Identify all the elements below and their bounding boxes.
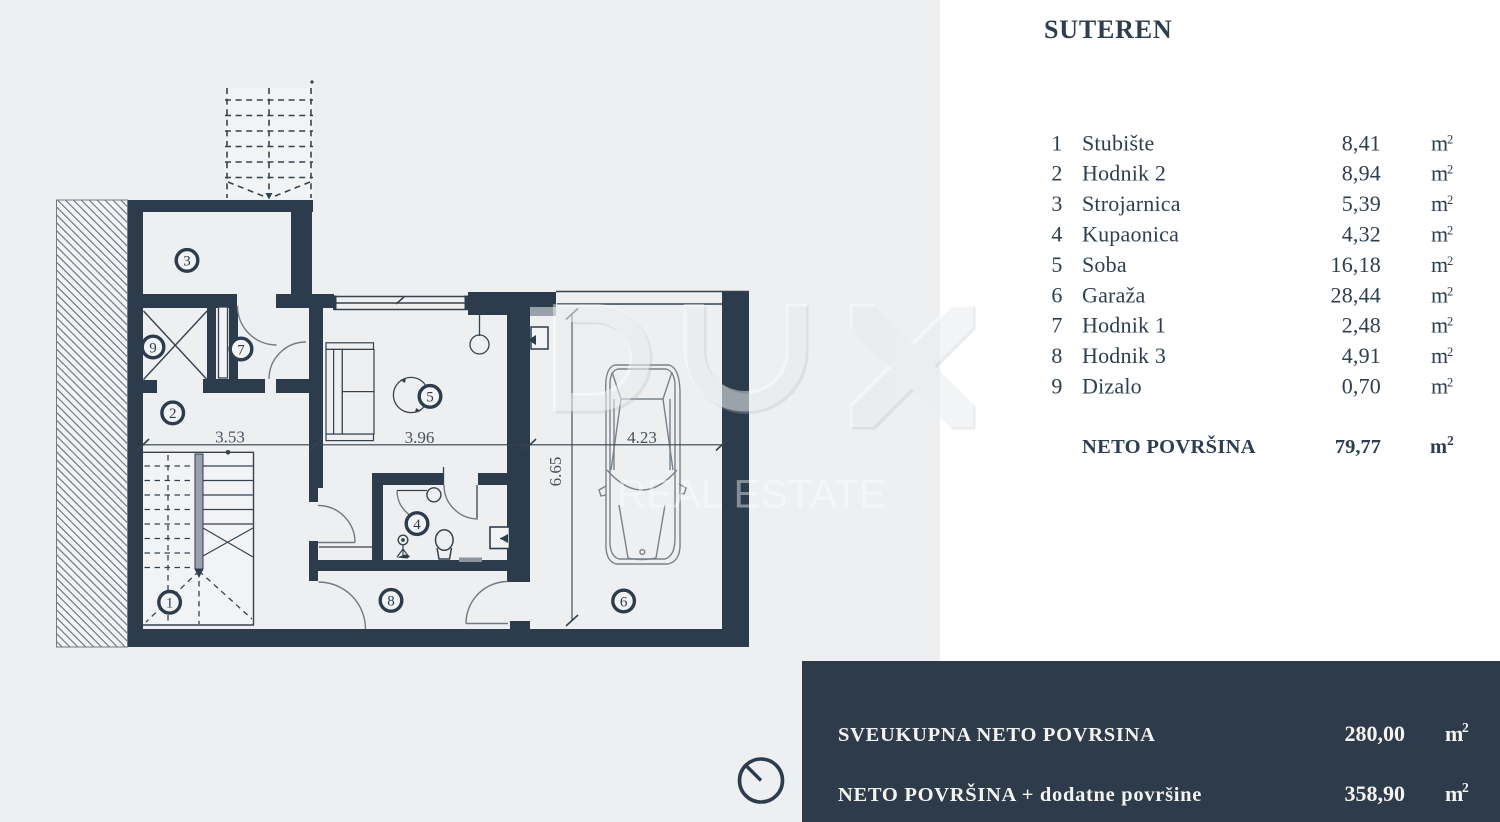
svg-text:2: 2 (1447, 376, 1453, 390)
svg-text:2: 2 (169, 406, 177, 422)
svg-text:2: 2 (1447, 433, 1454, 448)
svg-text:2: 2 (1447, 315, 1453, 329)
svg-text:m: m (1431, 161, 1448, 186)
svg-text:Hodnik 3: Hodnik 3 (1082, 343, 1166, 368)
svg-text:SUTEREN: SUTEREN (1044, 15, 1172, 44)
svg-text:m: m (1431, 222, 1448, 247)
svg-text:m: m (1431, 191, 1448, 216)
svg-text:Garaža: Garaža (1082, 282, 1146, 307)
svg-text:4,32: 4,32 (1342, 222, 1381, 247)
svg-text:6: 6 (620, 594, 628, 610)
svg-text:Kupaonica: Kupaonica (1082, 222, 1179, 247)
svg-text:9: 9 (1051, 374, 1062, 399)
svg-text:2: 2 (1447, 132, 1453, 146)
svg-text:2: 2 (1447, 284, 1453, 298)
svg-text:m: m (1431, 343, 1448, 368)
svg-text:6: 6 (1051, 282, 1062, 307)
svg-text:Soba: Soba (1082, 252, 1127, 277)
svg-text:2: 2 (1447, 224, 1453, 238)
svg-text:4,91: 4,91 (1342, 343, 1381, 368)
svg-text:3: 3 (1051, 191, 1062, 216)
svg-text:m: m (1445, 721, 1463, 746)
svg-text:4: 4 (413, 517, 421, 533)
svg-text:2: 2 (1447, 345, 1453, 359)
svg-text:m: m (1431, 313, 1448, 338)
svg-text:5: 5 (426, 390, 434, 406)
svg-text:1: 1 (1051, 130, 1062, 155)
svg-text:5,39: 5,39 (1342, 191, 1381, 216)
svg-text:SVEUKUPNA NETO POVRSINA: SVEUKUPNA NETO POVRSINA (838, 724, 1156, 746)
svg-text:2,48: 2,48 (1342, 313, 1381, 338)
svg-text:28,44: 28,44 (1331, 282, 1382, 307)
svg-text:m: m (1445, 781, 1463, 806)
svg-text:Dizalo: Dizalo (1082, 374, 1142, 399)
svg-text:3.53: 3.53 (215, 428, 245, 447)
svg-text:79,77: 79,77 (1335, 436, 1381, 458)
svg-text:8: 8 (1051, 343, 1062, 368)
svg-text:5: 5 (1051, 252, 1062, 277)
svg-text:3.96: 3.96 (405, 428, 435, 447)
svg-text:7: 7 (237, 342, 245, 358)
svg-text:m: m (1431, 282, 1448, 307)
svg-text:4.23: 4.23 (627, 428, 657, 447)
svg-text:1: 1 (166, 596, 174, 612)
svg-text:2: 2 (1051, 161, 1062, 186)
svg-text:7: 7 (1051, 313, 1062, 338)
svg-text:280,00: 280,00 (1345, 721, 1406, 746)
svg-text:8,94: 8,94 (1342, 161, 1381, 186)
svg-text:m: m (1431, 252, 1448, 277)
svg-text:Strojarnica: Strojarnica (1082, 191, 1181, 216)
svg-text:4: 4 (1051, 222, 1062, 247)
svg-text:2: 2 (1462, 720, 1469, 735)
svg-text:Hodnik 1: Hodnik 1 (1082, 313, 1166, 338)
svg-text:m: m (1431, 374, 1448, 399)
svg-text:6.65: 6.65 (546, 457, 565, 487)
svg-text:358,90: 358,90 (1345, 781, 1406, 806)
svg-text:2: 2 (1462, 780, 1469, 795)
svg-text:NETO POVRŠINA + dodatne površi: NETO POVRŠINA + dodatne površine (838, 782, 1202, 806)
svg-text:2: 2 (1447, 163, 1453, 177)
svg-text:8,41: 8,41 (1342, 130, 1381, 155)
svg-text:REAL ESTATE: REAL ESTATE (617, 473, 886, 517)
svg-text:2: 2 (1447, 193, 1453, 207)
svg-text:Stubište: Stubište (1082, 130, 1155, 155)
svg-text:Hodnik 2: Hodnik 2 (1082, 161, 1166, 186)
svg-text:m: m (1430, 436, 1447, 458)
svg-text:16,18: 16,18 (1331, 252, 1382, 277)
svg-text:3: 3 (183, 254, 191, 270)
svg-text:m: m (1431, 130, 1448, 155)
svg-text:8: 8 (387, 594, 395, 610)
svg-text:2: 2 (1447, 254, 1453, 268)
svg-text:NETO POVRŠINA: NETO POVRŠINA (1082, 434, 1256, 458)
svg-text:0,70: 0,70 (1342, 374, 1381, 399)
svg-text:9: 9 (149, 340, 157, 356)
